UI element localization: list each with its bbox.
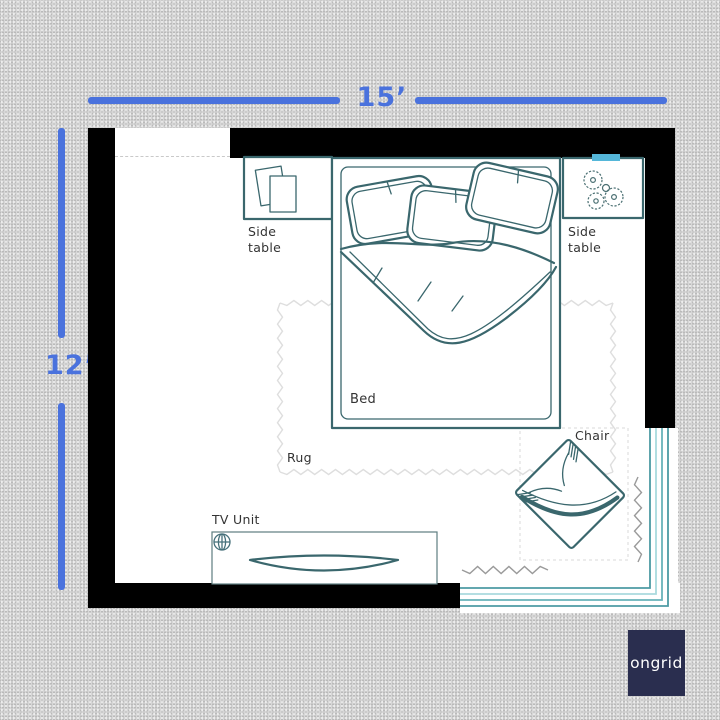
dimension-line-left-top bbox=[58, 128, 65, 338]
wall-right bbox=[645, 128, 675, 428]
room-floor bbox=[115, 158, 645, 583]
dimension-line-top-left bbox=[88, 97, 340, 104]
dimension-line-left-bottom bbox=[58, 403, 65, 590]
floor-plan-page: { "dimensions": { "horizontal": "15’", "… bbox=[0, 0, 720, 720]
wall-opening-dashed-line bbox=[115, 156, 230, 157]
dimension-label-width: 15’ bbox=[355, 82, 409, 113]
rug-label: Rug bbox=[287, 450, 312, 466]
wall-opening-top bbox=[115, 128, 230, 158]
side-table-left-label: Side table bbox=[248, 224, 281, 257]
bed-label: Bed bbox=[350, 392, 376, 409]
dimension-label-height: 12’ bbox=[45, 350, 91, 381]
brand-logo-text: ongrid bbox=[630, 654, 683, 672]
brand-logo: ongrid bbox=[628, 630, 685, 696]
wall-top bbox=[230, 128, 675, 158]
wall-bottom bbox=[88, 583, 460, 608]
wall-left bbox=[88, 128, 115, 608]
chair-label: Chair bbox=[575, 428, 609, 444]
side-table-right-label: Side table bbox=[568, 224, 601, 257]
tv-unit-label: TV Unit bbox=[212, 512, 260, 528]
dimension-line-top-right bbox=[415, 97, 667, 104]
window-floor-bottom bbox=[460, 583, 680, 613]
